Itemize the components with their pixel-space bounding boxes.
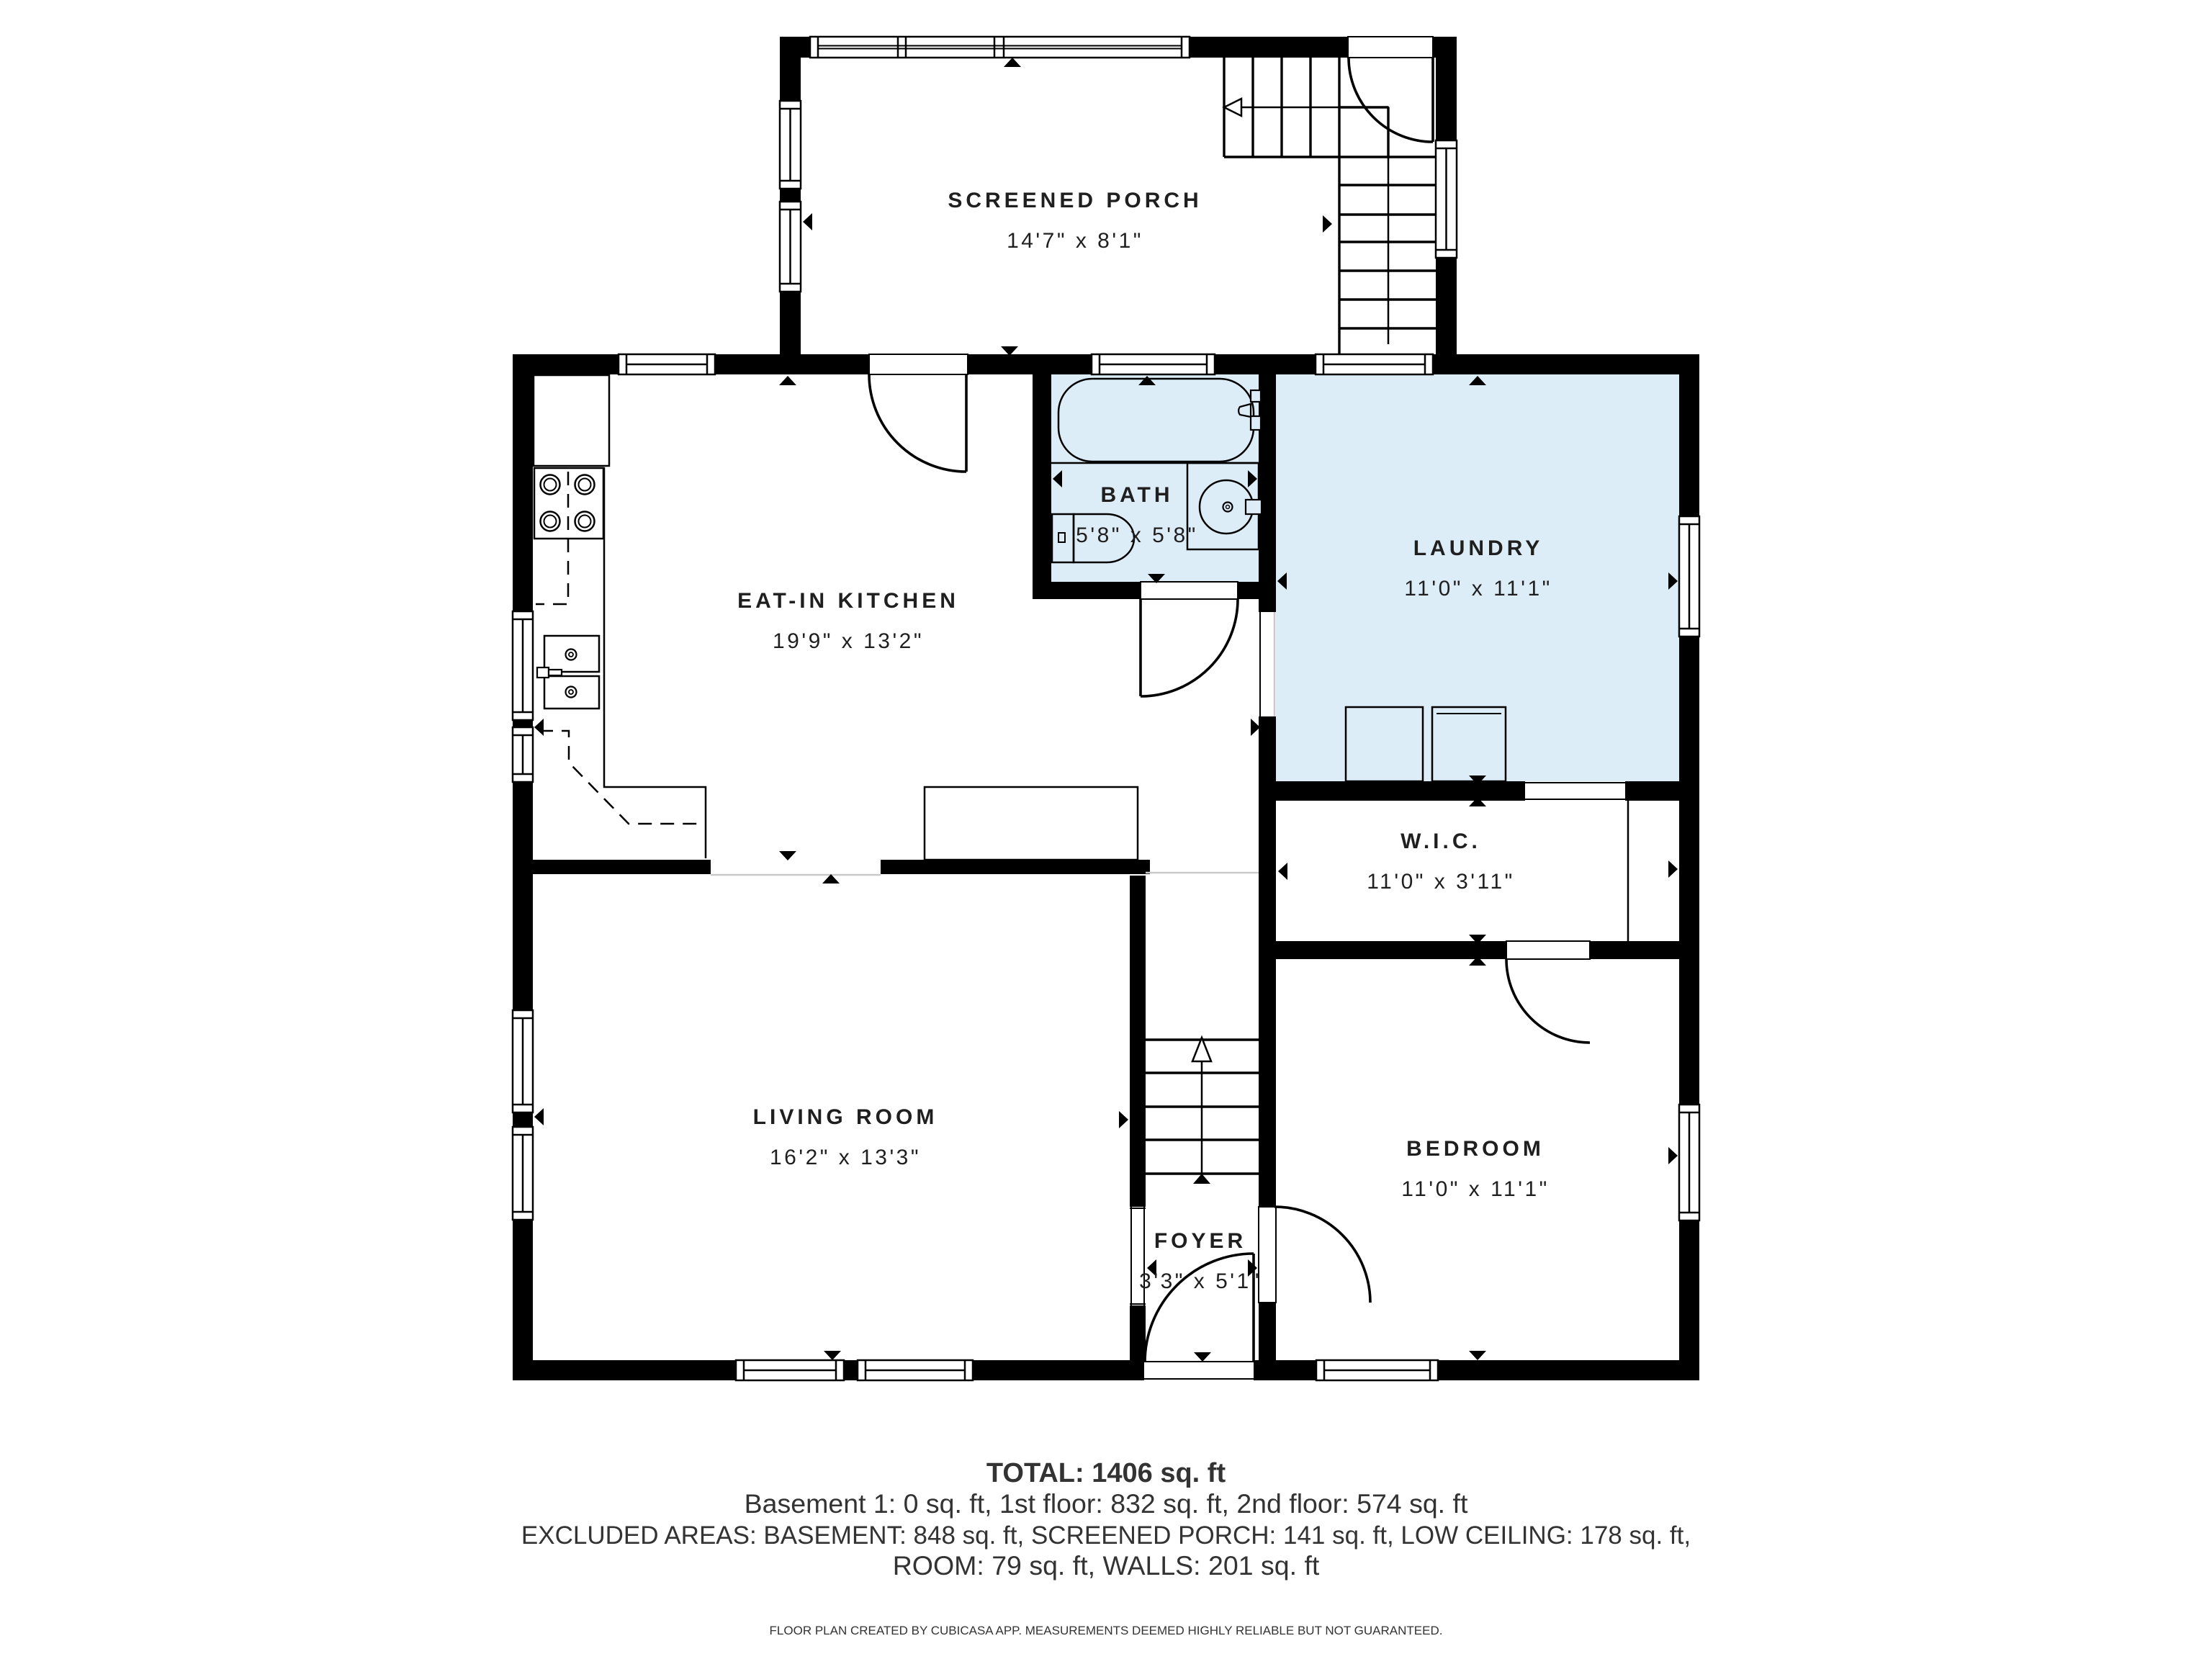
svg-text:BATH: BATH	[1100, 483, 1173, 507]
svg-text:SCREENED PORCH: SCREENED PORCH	[948, 189, 1202, 212]
svg-text:EXCLUDED AREAS: BASEMENT: 848: EXCLUDED AREAS: BASEMENT: 848 sq. ft, SC…	[521, 1521, 1691, 1550]
svg-text:EAT-IN KITCHEN: EAT-IN KITCHEN	[737, 589, 959, 613]
svg-text:11'0" x 11'1": 11'0" x 11'1"	[1401, 1177, 1550, 1201]
svg-text:W.I.C.: W.I.C.	[1401, 829, 1481, 853]
svg-text:FLOOR PLAN CREATED BY CUBICASA: FLOOR PLAN CREATED BY CUBICASA APP. MEAS…	[770, 1624, 1443, 1637]
svg-text:LIVING ROOM: LIVING ROOM	[753, 1105, 938, 1129]
svg-text:5'8" x 5'8": 5'8" x 5'8"	[1076, 523, 1198, 547]
svg-text:3'3" x 5'1": 3'3" x 5'1"	[1139, 1269, 1262, 1293]
svg-text:11'0" x 3'11": 11'0" x 3'11"	[1367, 870, 1515, 894]
svg-text:11'0" x 11'1": 11'0" x 11'1"	[1404, 577, 1552, 601]
svg-text:Basement 1: 0 sq. ft, 1st floo: Basement 1: 0 sq. ft, 1st floor: 832 sq.…	[745, 1488, 1468, 1519]
svg-text:16'2" x 13'3": 16'2" x 13'3"	[770, 1146, 921, 1169]
svg-text:TOTAL: 1406 sq. ft: TOTAL: 1406 sq. ft	[986, 1458, 1226, 1488]
svg-text:FOYER: FOYER	[1154, 1229, 1246, 1253]
svg-text:ROOM: 79 sq. ft, WALLS: 201 sq: ROOM: 79 sq. ft, WALLS: 201 sq. ft	[893, 1550, 1320, 1581]
svg-text:LAUNDRY: LAUNDRY	[1413, 536, 1544, 560]
svg-text:19'9" x 13'2": 19'9" x 13'2"	[773, 629, 924, 653]
svg-text:14'7" x 8'1": 14'7" x 8'1"	[1007, 229, 1143, 253]
svg-text:BEDROOM: BEDROOM	[1406, 1137, 1545, 1161]
